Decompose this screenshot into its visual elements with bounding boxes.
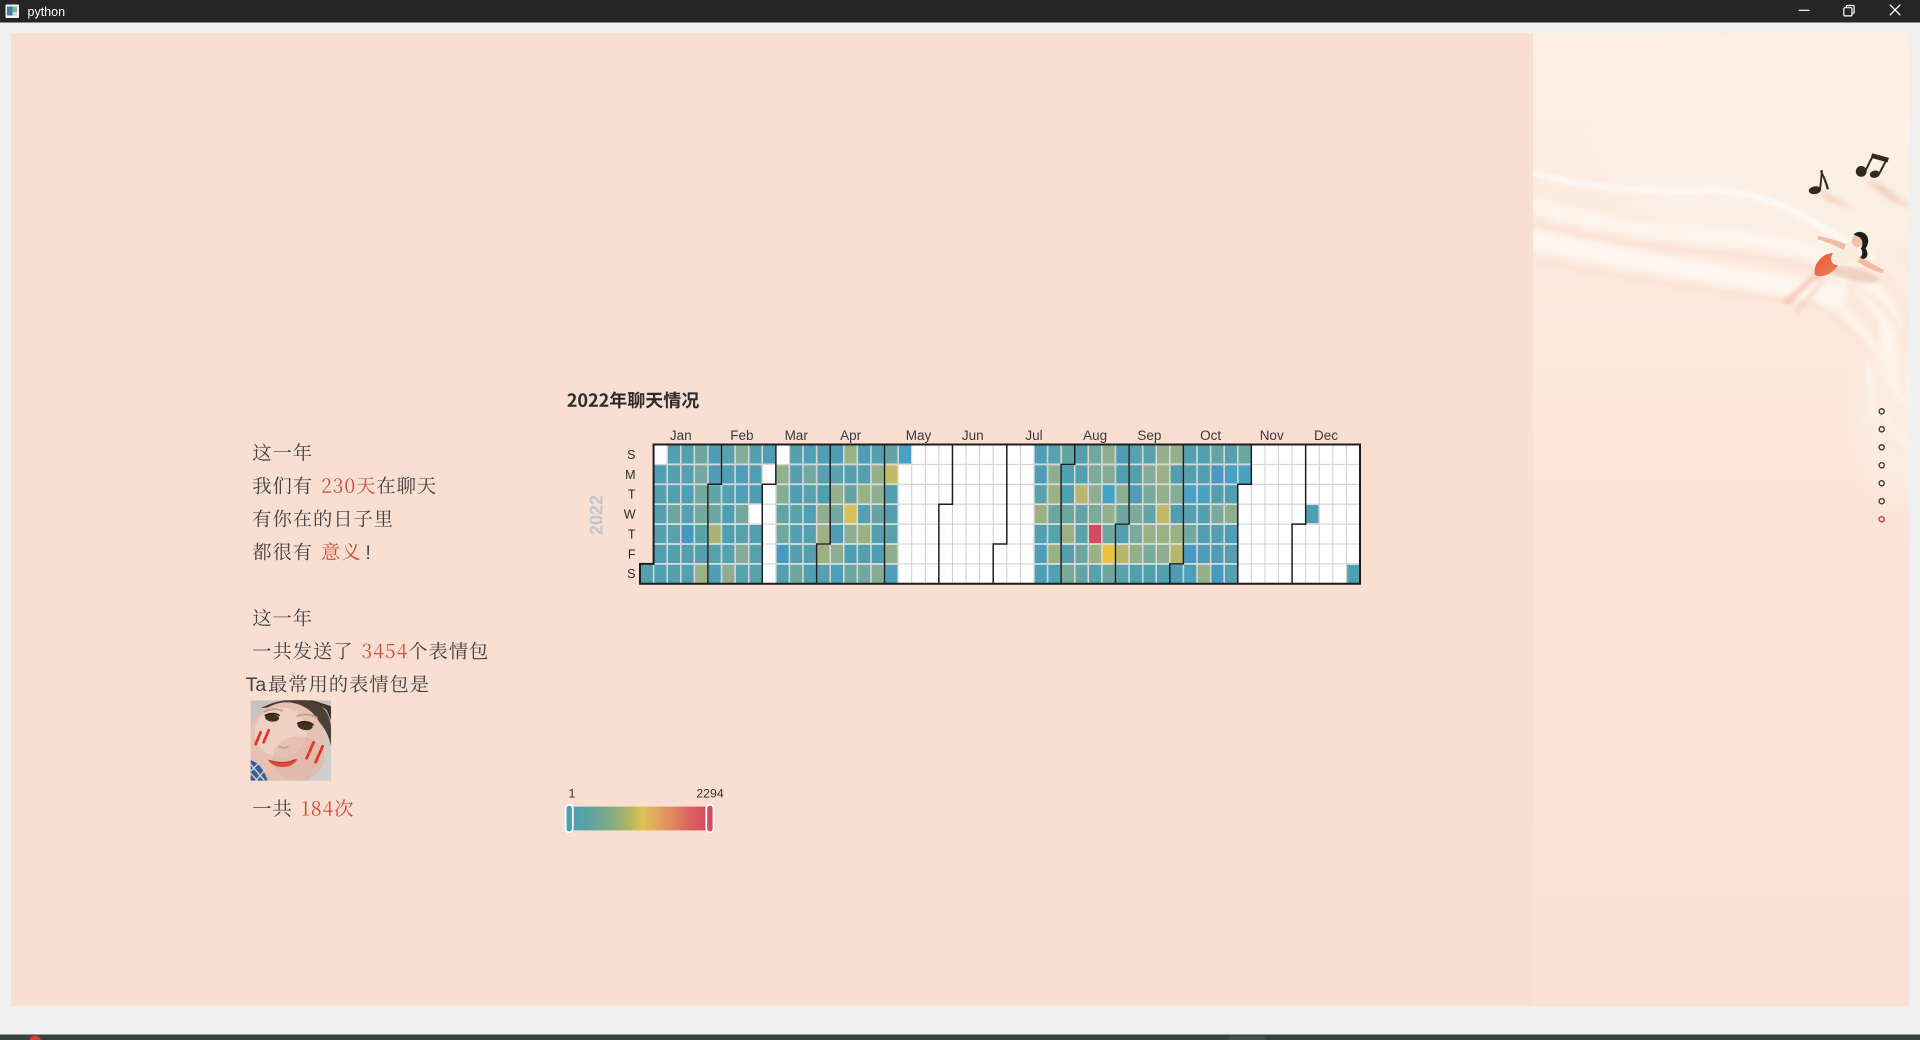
svg-text:Jul: Jul xyxy=(1025,428,1042,443)
svg-text:Feb: Feb xyxy=(730,428,753,443)
svg-text:Aug: Aug xyxy=(1083,428,1107,443)
svg-text:Oct: Oct xyxy=(1200,428,1221,443)
svg-text:May: May xyxy=(906,428,932,443)
svg-text:Apr: Apr xyxy=(840,428,862,443)
svg-text:Ta: Ta xyxy=(246,674,267,696)
svg-text:W: W xyxy=(624,508,636,522)
svg-text:Nov: Nov xyxy=(1260,428,1284,443)
svg-text:S: S xyxy=(627,448,635,462)
svg-text:F: F xyxy=(628,547,636,561)
svg-text:S: S xyxy=(627,567,635,581)
svg-text:1: 1 xyxy=(569,787,576,801)
svg-text:Jun: Jun xyxy=(962,428,984,443)
svg-text:Dec: Dec xyxy=(1314,428,1338,443)
svg-text:2022: 2022 xyxy=(587,495,607,535)
svg-text:python: python xyxy=(28,5,66,19)
svg-text:!: ! xyxy=(366,543,371,564)
svg-text:Sep: Sep xyxy=(1137,428,1161,443)
svg-text:Mar: Mar xyxy=(785,428,809,443)
svg-text:T: T xyxy=(628,488,636,502)
svg-text:2294: 2294 xyxy=(696,787,724,801)
svg-text:Jan: Jan xyxy=(670,428,692,443)
svg-text:M: M xyxy=(625,468,635,482)
svg-text:T: T xyxy=(628,527,636,541)
